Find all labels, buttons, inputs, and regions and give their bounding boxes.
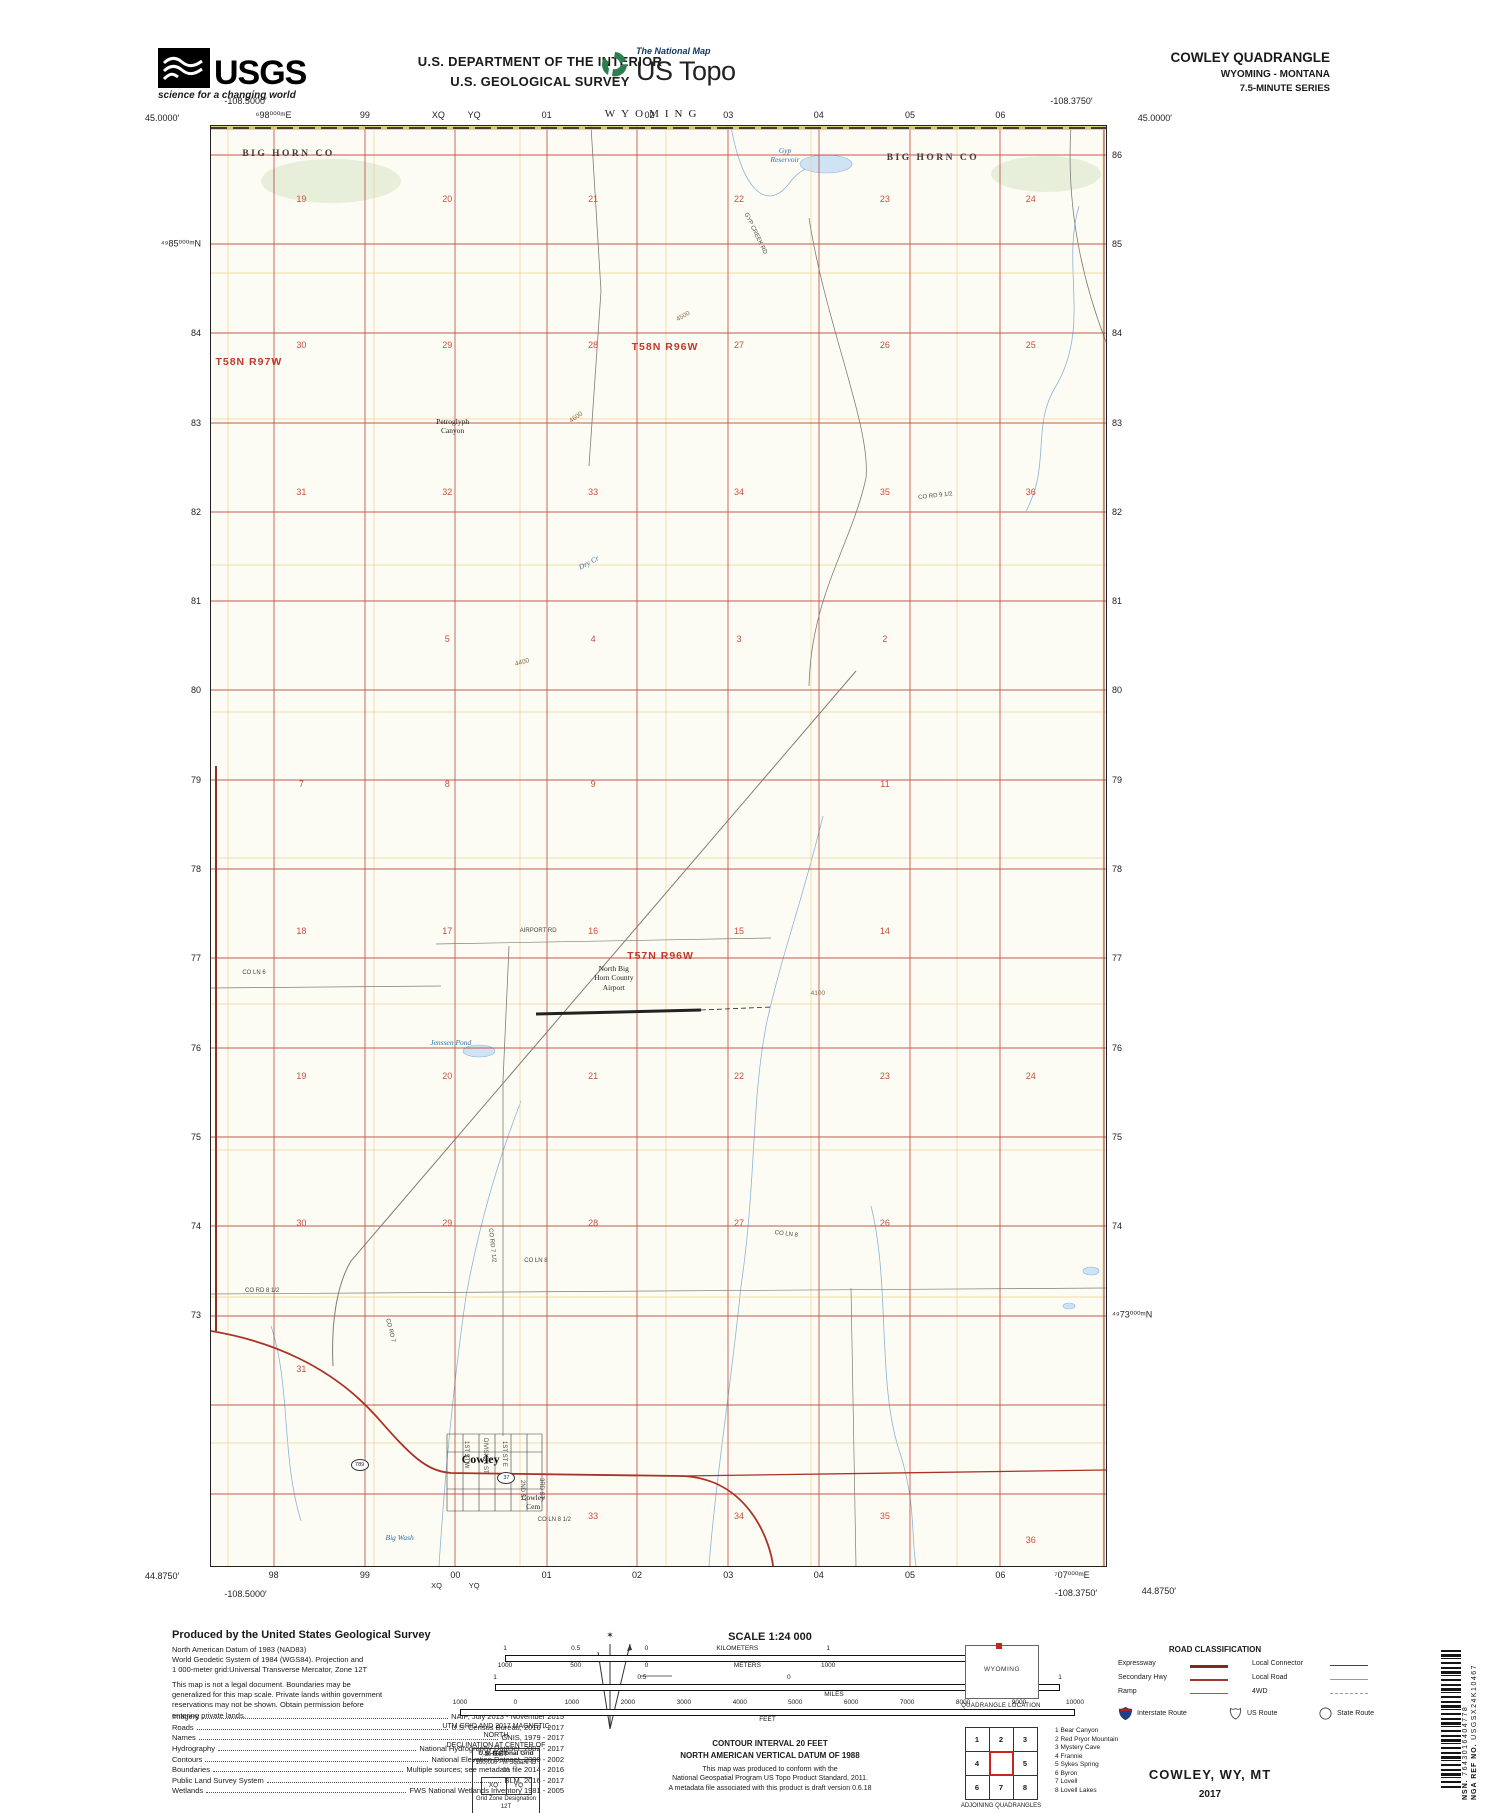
fourwd-swatch	[1330, 1693, 1368, 1694]
grid-label-right: 78	[1112, 864, 1122, 874]
township-label: T58N R97W	[215, 356, 282, 368]
grid-label-left: ⁴⁹85⁰⁰⁰ᵐN	[161, 239, 201, 250]
road-label: 1ST ST E	[501, 1441, 507, 1467]
section-number: 24	[1026, 1071, 1036, 1081]
section-number: 32	[442, 487, 452, 497]
corner-lat-nw: 45.0000′	[145, 113, 179, 123]
grid-label-top: ⁶98⁰⁰⁰ᵐE	[256, 110, 292, 121]
adjoining-item: 4 Frannie	[1055, 1753, 1165, 1762]
grid-label-bottom: 03	[723, 1570, 733, 1580]
section-number: 4	[591, 634, 596, 644]
interstate-legend: Interstate Route	[1118, 1706, 1187, 1721]
national-map-icon	[600, 49, 630, 84]
section-number: 11	[880, 779, 889, 789]
grid-label-bottom: 01	[542, 1570, 552, 1580]
section-number: 21	[588, 1071, 598, 1081]
local-road-swatch	[1330, 1679, 1368, 1680]
quadrangle-location-box: WYOMING	[965, 1645, 1039, 1699]
usgs-acronym: USGS	[214, 59, 306, 88]
section-number: 29	[442, 1218, 452, 1228]
section-number: 22	[734, 1071, 744, 1081]
contour-elevation-label: 4100	[811, 990, 825, 997]
section-number: 23	[880, 1071, 890, 1081]
section-number: 26	[880, 1218, 890, 1228]
grid-label-left: 79	[191, 775, 201, 785]
grid-label-left: 81	[191, 596, 201, 606]
corner-lat-se: 44.8750′	[1142, 1586, 1176, 1596]
road-label: 2ND ST	[519, 1480, 525, 1501]
usgs-wave-icon	[158, 48, 210, 88]
section-number: 2	[882, 634, 887, 644]
grid-label-left: 76	[191, 1043, 201, 1053]
road-label: CO LN 6	[242, 970, 265, 976]
adjoining-quadrangles-grid: 1 2 3 4 5 6 7 8	[965, 1727, 1037, 1799]
grid-label-left: 78	[191, 864, 201, 874]
corner-lat-sw: 44.8750′	[145, 1571, 179, 1581]
section-number: 29	[442, 340, 452, 350]
ustopo-title: US Topo	[636, 56, 736, 87]
section-number: 36	[1026, 1535, 1036, 1545]
grid-label-right: 77	[1112, 953, 1122, 963]
grid-label-bottom: 04	[814, 1570, 824, 1580]
township-label: T58N R96W	[632, 341, 699, 353]
section-number: 22	[734, 194, 744, 204]
section-number: 5	[445, 634, 450, 644]
town-label: Cowley	[462, 1452, 500, 1467]
section-number: 27	[734, 340, 744, 350]
quadrangle-title: COWLEY QUADRANGLE WYOMING - MONTANA 7.5-…	[1170, 48, 1330, 96]
section-number: 28	[588, 1218, 598, 1228]
water-label: Jenssen Pond	[430, 1038, 471, 1047]
road-label: CO LN 8	[524, 1258, 547, 1264]
grid-label-right: 85	[1112, 239, 1122, 249]
road-label: CO RD 8 1/2	[245, 1288, 279, 1294]
section-number: 33	[588, 487, 598, 497]
quad-series: 7.5-MINUTE SERIES	[1170, 82, 1330, 96]
nsn-number: NSN. 7643016404778	[1462, 1650, 1469, 1800]
section-number: 34	[734, 487, 744, 497]
grid-label-bottom: 98	[269, 1570, 279, 1580]
scale-title: SCALE 1:24 000	[450, 1630, 1090, 1645]
grid-label-bottom: 00	[450, 1570, 460, 1580]
national-map-brand: The National Map	[636, 46, 736, 56]
grid-label-top: 05	[905, 110, 915, 120]
place-label: Petroglyph Canyon	[436, 417, 469, 436]
section-number: 23	[880, 194, 890, 204]
adjoining-item: 1 Bear Canyon	[1055, 1727, 1165, 1736]
grid-label-top: 99	[360, 110, 370, 120]
grid-label-left: 84	[191, 328, 201, 338]
imprint-year: 2017	[1130, 1788, 1290, 1802]
grid-label-left: 80	[191, 685, 201, 695]
scale-bar-km: 10.50KILOMETERS12 10005000METERS10002000	[505, 1655, 1010, 1660]
section-number: 20	[442, 1071, 452, 1081]
section-number: 7	[299, 779, 304, 789]
usng-square-label: XQ	[431, 1581, 442, 1590]
interstate-shield-icon	[1118, 1706, 1133, 1721]
section-number: 19	[296, 1071, 306, 1081]
grid-label-top: YQ	[468, 110, 481, 120]
section-number: 15	[734, 926, 744, 936]
section-number: 34	[734, 1511, 744, 1521]
section-number: 3	[737, 634, 742, 644]
grid-label-top: 04	[814, 110, 824, 120]
section-number: 24	[1026, 194, 1036, 204]
water-label: Gyp Reservoir	[770, 146, 799, 164]
county-label: BIG HORN CO	[242, 149, 334, 159]
imprint-name: COWLEY, WY, MT	[1130, 1766, 1290, 1784]
section-number: 17	[442, 926, 452, 936]
section-number: 35	[880, 1511, 890, 1521]
secondary-hwy-swatch	[1190, 1679, 1228, 1681]
state-route-legend: State Route	[1318, 1706, 1374, 1721]
grid-label-right: 74	[1112, 1221, 1122, 1231]
section-number: 20	[442, 194, 452, 204]
section-number: 21	[588, 194, 598, 204]
quad-location-marker	[996, 1643, 1002, 1649]
corner-lon-se: -108.3750′	[1055, 1588, 1097, 1598]
grid-label-right: 80	[1112, 685, 1122, 695]
grid-label-left: 74	[191, 1221, 201, 1231]
grid-label-left: 73	[191, 1310, 201, 1320]
corner-lon-nw: -108.5000′	[224, 96, 266, 106]
barcode	[1441, 1650, 1461, 1790]
grid-label-right: 81	[1112, 596, 1122, 606]
section-number: 31	[296, 1364, 306, 1374]
section-number: 25	[1026, 340, 1036, 350]
corner-lon-sw: -108.5000′	[224, 1589, 266, 1599]
road-classification-title: ROAD CLASSIFICATION	[1150, 1645, 1280, 1656]
section-number: 33	[588, 1511, 598, 1521]
quad-name: COWLEY QUADRANGLE	[1170, 48, 1330, 68]
grid-label-bottom: 06	[995, 1570, 1005, 1580]
grid-label-right: 82	[1112, 507, 1122, 517]
section-number: 19	[296, 194, 306, 204]
section-number: 18	[296, 926, 306, 936]
grid-label-left: 77	[191, 953, 201, 963]
us-route-legend: US Route	[1228, 1706, 1277, 1721]
grid-label-right: ⁴⁹73⁰⁰⁰ᵐN	[1112, 1310, 1152, 1321]
adjoining-item: 2 Red Pryor Mountain	[1055, 1736, 1165, 1745]
section-number: 27	[734, 1218, 744, 1228]
grid-label-top: 03	[723, 110, 733, 120]
section-number: 16	[588, 926, 598, 936]
ramp-swatch	[1190, 1693, 1228, 1694]
us-route-shield-icon	[1228, 1706, 1243, 1721]
grid-label-right: 83	[1112, 418, 1122, 428]
adjoining-item: 3 Mystery Cave	[1055, 1744, 1165, 1753]
section-number: 30	[296, 1218, 306, 1228]
map-body: WYOMING 45.0000′ -108.5000′ 45.0000′ -10…	[210, 125, 1107, 1567]
grid-label-left: 82	[191, 507, 201, 517]
corner-lat-ne: 45.0000′	[1138, 113, 1172, 123]
section-number: 9	[591, 779, 596, 789]
grid-label-top: 01	[542, 110, 552, 120]
corner-lon-ne: -108.3750′	[1050, 96, 1092, 106]
road-label: CO LN 8 1/2	[538, 1517, 571, 1523]
grid-label-bottom: 02	[632, 1570, 642, 1580]
section-number: 31	[296, 487, 306, 497]
quad-states: WYOMING - MONTANA	[1170, 68, 1330, 83]
grid-label-right: 79	[1112, 775, 1122, 785]
grid-label-top: XQ	[432, 110, 445, 120]
county-label: BIG HORN CO	[887, 153, 979, 163]
ustopo-logo: The National Map US Topo	[600, 46, 820, 87]
grid-label-right: 76	[1112, 1043, 1122, 1053]
current-quad-cell	[989, 1751, 1014, 1776]
road-label: 3RD ST	[538, 1478, 544, 1499]
section-number: 14	[880, 926, 890, 936]
grid-label-right: 75	[1112, 1132, 1122, 1142]
township-label: T57N R96W	[627, 950, 694, 962]
section-number: 35	[880, 487, 890, 497]
section-number: 28	[588, 340, 598, 350]
usgs-topo-sheet: USGS science for a changing world U.S. D…	[0, 0, 1500, 1813]
grid-label-bottom: 05	[905, 1570, 915, 1580]
grid-label-bottom: ⁷07⁰⁰⁰ᵐE	[1054, 1570, 1089, 1581]
road-label: AIRPORT RD	[520, 928, 557, 934]
section-number: 26	[880, 340, 890, 350]
grid-label-right: 86	[1112, 150, 1122, 160]
grid-label-top: 06	[995, 110, 1005, 120]
grid-label-left: 83	[191, 418, 201, 428]
sheet-imprint: COWLEY, WY, MT 2017	[1130, 1766, 1290, 1801]
quadrangle-location-caption: QUADRANGLE LOCATION	[950, 1702, 1052, 1710]
adjoining-caption: ADJOINING QUADRANGLES	[938, 1802, 1064, 1810]
state-route-circle-icon	[1318, 1706, 1333, 1721]
local-connector-swatch	[1330, 1665, 1368, 1666]
water-label: Big Wash	[386, 1533, 414, 1542]
place-label: North Big Horn County Airport	[594, 964, 633, 992]
nga-ref-number: NGA REF NO. USGSX24K10467	[1471, 1650, 1478, 1800]
grid-label-right: 84	[1112, 328, 1122, 338]
section-number: 8	[445, 779, 450, 789]
grid-label-bottom: 99	[360, 1570, 370, 1580]
usgs-tagline: science for a changing world	[158, 90, 408, 101]
grid-label-left: 75	[191, 1132, 201, 1142]
section-number: 30	[296, 340, 306, 350]
section-number: 36	[1026, 487, 1036, 497]
expressway-swatch	[1190, 1665, 1228, 1668]
usng-square-label: YQ	[469, 1581, 480, 1590]
grid-label-top: 02	[645, 110, 655, 120]
